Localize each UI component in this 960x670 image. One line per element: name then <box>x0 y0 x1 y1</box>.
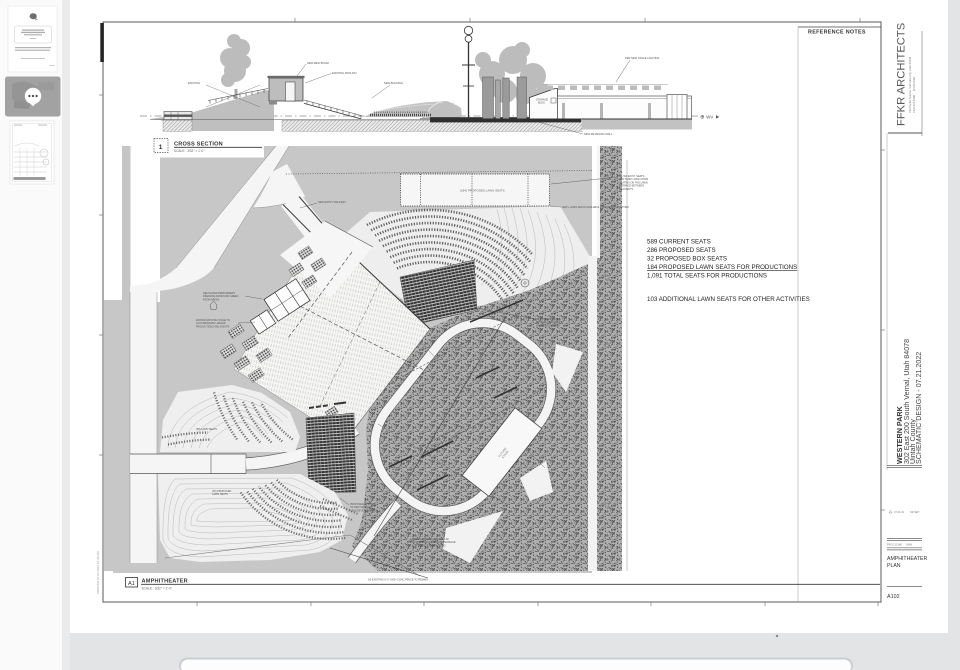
svg-text:NEW RESTROOM: NEW RESTROOM <box>307 61 329 65</box>
svg-text:103 ADDITIONAL LAWN SEATS FOR: 103 ADDITIONAL LAWN SEATS FOR OTHER ACTI… <box>647 296 810 303</box>
svg-text:1: 1 <box>159 144 163 151</box>
svg-text:WALKS AND RAMPS: WALKS AND RAMPS <box>536 324 560 327</box>
svg-text:PROJ 21148 JMW: PROJ 21148 JMW <box>887 543 912 547</box>
svg-text:SCHEMATIC DESIGN - 07.21.2022: SCHEMATIC DESIGN - 07.21.2022 <box>915 352 923 464</box>
svg-text:EXISTING: EXISTING <box>188 81 200 85</box>
svg-text:PER NEW STAGE LIGHTING: PER NEW STAGE LIGHTING <box>625 56 659 60</box>
svg-text:PRINTED 07.21.2022 10:38 AM: PRINTED 07.21.2022 10:38 AM <box>96 551 100 594</box>
svg-text:PRODUCTIONS AND EVENTS: PRODUCTIONS AND EVENTS <box>196 325 230 328</box>
svg-text:(184) PROPOSED LAWN SEATS: (184) PROPOSED LAWN SEATS <box>460 189 505 193</box>
svg-text:ROOM AREAS: ROOM AREAS <box>203 298 219 301</box>
svg-text:CROSS SECTION: CROSS SECTION <box>174 142 223 148</box>
svg-text:1,091 TOTAL SEATS FOR PRODUCTI: 1,091 TOTAL SEATS FOR PRODUCTIONS <box>647 273 767 280</box>
svg-text:A102: A102 <box>887 594 900 600</box>
svg-text:AMPHITHEATER: AMPHITHEATER <box>887 556 928 562</box>
svg-text:WALKWAYS: WALKWAYS <box>619 188 633 191</box>
svg-text:A1: A1 <box>128 581 135 587</box>
svg-text:AMPHITHEATER: AMPHITHEATER <box>142 579 188 585</box>
svg-text:184 PROPOSED LAWN SEATS FOR PR: 184 PROPOSED LAWN SEATS FOR PRODUCTIONS <box>647 264 797 271</box>
svg-text:32 PROPOSED BOX SEATS: 32 PROPOSED BOX SEATS <box>647 256 727 263</box>
svg-text:FOR EVENTS AND PARKING: FOR EVENTS AND PARKING <box>412 544 446 547</box>
svg-text:07.21.22: 07.21.22 <box>894 510 905 514</box>
svg-text:SCALE: 3/32" = 1'-0": SCALE: 3/32" = 1'-0" <box>174 149 204 153</box>
svg-text:SD SET: SD SET <box>910 510 920 514</box>
svg-text:EXISTING PAVILION: EXISTING PAVILION <box>332 71 357 75</box>
svg-text:(58) LAWN SEATS: (58) LAWN SEATS <box>196 428 217 431</box>
svg-text:730 Pacific Avenue Salt Lake: 730 Pacific Avenue Salt Lake City, Utah … <box>908 56 912 113</box>
svg-text:R: R <box>604 342 613 348</box>
svg-text:REFERENCE NOTES: REFERENCE NOTES <box>808 30 866 36</box>
svg-text:AS EXISTING 6'-0" HIGH CONC FE: AS EXISTING 6'-0" HIGH CONC FENCE TO REM… <box>368 579 428 582</box>
svg-text:CONCRETE TERRACES: CONCRETE TERRACES <box>350 509 377 512</box>
svg-text:t 801.521.6186 · FFKR.COM: t 801.521.6186 · FFKR.COM <box>912 76 916 113</box>
svg-text:M: M <box>604 274 613 281</box>
svg-text:286 PROPOSED SEATS: 286 PROPOSED SEATS <box>647 247 716 254</box>
svg-text:SCALE: 3/32" = 1'-0": SCALE: 3/32" = 1'-0" <box>142 587 172 591</box>
svg-text:NEW BUILDING: NEW BUILDING <box>384 81 403 85</box>
svg-text:LAWN SEATS: LAWN SEATS <box>212 493 228 496</box>
svg-text:FFKR ARCHITECTS: FFKR ARCHITECTS <box>896 23 908 126</box>
svg-text:NEW ENTRY WALKWAY: NEW ENTRY WALKWAY <box>318 201 346 204</box>
svg-text:R: R <box>604 502 613 508</box>
svg-text:NEW RETAINING WALL: NEW RETAINING WALL <box>584 132 613 136</box>
svg-text:ADD'L LAWN SEATS AVAILABLE FOR: ADD'L LAWN SEATS AVAILABLE FOR OTHER ACT… <box>562 206 629 209</box>
svg-text:PLAN: PLAN <box>887 563 901 569</box>
svg-text:589 CURRENT SEATS: 589 CURRENT SEATS <box>647 239 711 246</box>
svg-text:BLDG: BLDG <box>538 102 545 105</box>
